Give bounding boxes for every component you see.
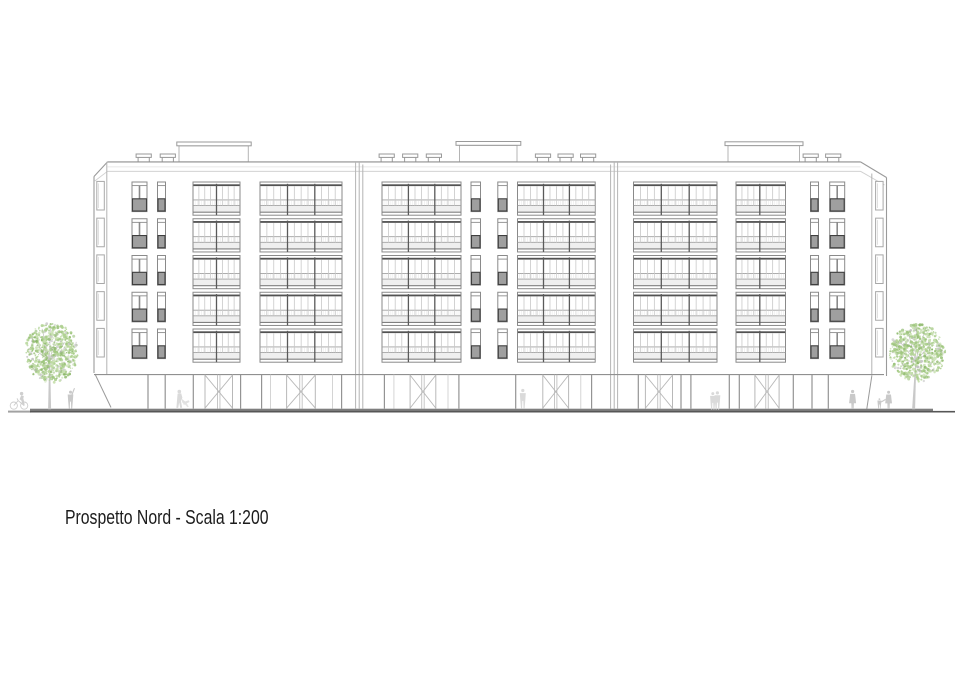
- svg-text:Prospetto Nord - Scala 1:200: Prospetto Nord - Scala 1:200: [65, 507, 269, 529]
